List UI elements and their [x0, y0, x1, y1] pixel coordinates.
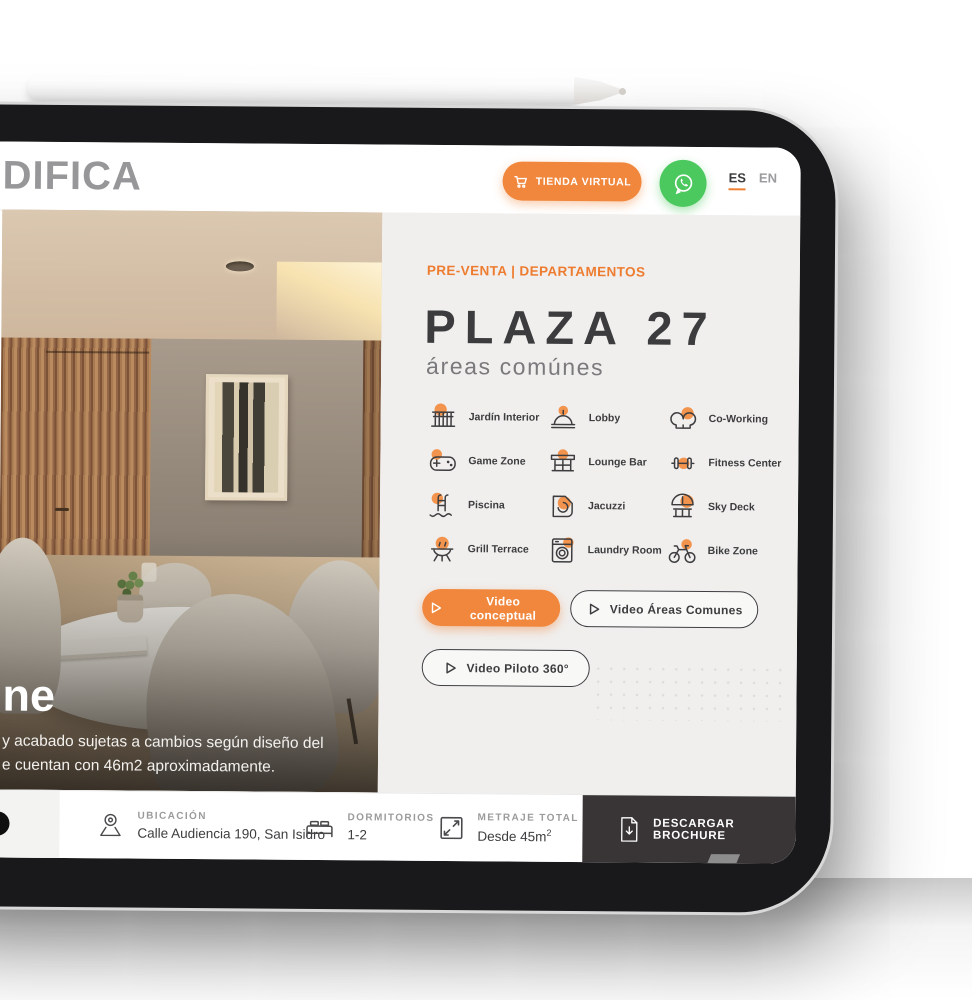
lounge-bar-icon — [545, 444, 580, 479]
apartment-photo: ne y acabado sujetas a cambios según dis… — [0, 209, 382, 792]
amenity-label: Lounge Bar — [588, 456, 646, 469]
info-dormitorios: DORMITORIOS 1-2 — [303, 793, 434, 862]
amenity-lobby: Lobby — [546, 400, 666, 437]
video-areas-label: Video Áreas Comunes — [610, 602, 743, 617]
tienda-virtual-button[interactable]: TIENDA VIRTUAL — [502, 161, 641, 201]
tienda-virtual-label: TIENDA VIRTUAL — [536, 175, 632, 188]
amenity-label: Piscina — [468, 499, 505, 512]
play-icon — [586, 601, 602, 617]
photo-door-handle — [55, 508, 69, 511]
info-metraje: METRAJE TOTAL Desde 45m2 — [437, 794, 579, 863]
photo-artwork-canvas — [214, 382, 279, 492]
video-areas-comunes-button[interactable]: Video Áreas Comunes — [570, 590, 758, 628]
video-piloto-360-button[interactable]: Video Piloto 360° — [422, 649, 590, 687]
amenity-label: Laundry Room — [588, 544, 662, 557]
coworking-heads-icon — [666, 401, 701, 436]
jacuzzi-icon — [545, 488, 580, 523]
whatsapp-icon — [668, 168, 698, 198]
grill-icon — [425, 531, 460, 566]
scene: DIFICA TIENDA VIRTUAL — [0, 0, 972, 1000]
metraje-label: METRAJE TOTAL — [478, 812, 579, 824]
amenity-piscina: Piscina — [425, 487, 545, 524]
main-area: ne y acabado sujetas a cambios según dis… — [0, 209, 800, 795]
video-conceptual-label: Video conceptual — [452, 594, 554, 623]
amenity-lounge-bar: Lounge Bar — [545, 444, 665, 481]
washing-machine-icon — [545, 532, 580, 567]
photo-caption-line: y acabado sujetas a cambios según diseño… — [2, 729, 324, 756]
cart-icon — [513, 173, 529, 189]
pool-ladder-icon — [425, 487, 460, 522]
lang-en[interactable]: EN — [759, 170, 777, 190]
photo-cove-light — [276, 262, 382, 347]
photo-artwork — [205, 374, 288, 501]
garden-icon — [426, 399, 461, 434]
umbrella-deck-icon — [665, 489, 700, 524]
download-document-icon — [618, 814, 640, 844]
amenity-label: Grill Terrace — [468, 543, 529, 556]
amenity-label: Bike Zone — [708, 545, 758, 558]
amenity-laundry-room: Laundry Room — [545, 532, 665, 569]
amenity-label: Lobby — [589, 412, 621, 425]
dumbbell-icon — [665, 445, 700, 480]
tablet-device: DIFICA TIENDA VIRTUAL — [0, 99, 839, 916]
amenity-label: Jardín Interior — [469, 411, 540, 424]
ubicacion-label: UBICACIÓN — [138, 811, 326, 823]
project-subtitle: áreas comúnes — [426, 353, 604, 381]
location-pin-icon — [95, 808, 125, 842]
apple-pencil-tip — [574, 77, 624, 105]
site-logo[interactable]: DIFICA — [2, 153, 142, 199]
amenity-label: Jacuzzi — [588, 500, 625, 513]
ubicacion-value: Calle Audiencia 190, San Isidro — [137, 826, 325, 842]
tablet-screen: DIFICA TIENDA VIRTUAL — [0, 141, 801, 863]
project-title: PLAZA 27 — [424, 299, 717, 356]
area-expand-icon — [437, 814, 465, 842]
video-piloto-label: Video Piloto 360° — [467, 661, 569, 676]
brochure-label: DESCARGAR BROCHURE — [653, 818, 796, 843]
amenity-label: Sky Deck — [708, 501, 755, 514]
reception-bell-icon — [546, 400, 581, 435]
play-icon — [428, 599, 444, 615]
amenities-grid: Jardín Interior Lobby — [425, 399, 798, 570]
gamepad-icon — [425, 443, 460, 478]
dots-decoration — [591, 662, 783, 722]
webpage: DIFICA TIENDA VIRTUAL — [0, 141, 801, 863]
amenity-bike-zone: Bike Zone — [665, 533, 797, 570]
amenity-game-zone: Game Zone — [425, 443, 545, 480]
info-ubicacion: UBICACIÓN Calle Audiencia 190, San Isidr… — [95, 791, 325, 861]
apple-pencil-body — [28, 73, 576, 105]
descargar-brochure-button[interactable]: DESCARGAR BROCHURE — [582, 795, 796, 864]
language-switcher: ES EN — [729, 170, 778, 190]
photo-downlight — [226, 261, 254, 271]
photo-caption-title: ne — [2, 672, 324, 720]
photo-caption-line: e cuentan con 46m2 aproximadamente. — [2, 753, 324, 780]
property-info-bar: UBICACIÓN Calle Audiencia 190, San Isidr… — [0, 789, 796, 863]
play-icon — [443, 659, 459, 675]
metraje-sup: 2 — [546, 828, 551, 838]
info-panel: PRE-VENTA | DEPARTAMENTOS PLAZA 27 áreas… — [378, 212, 801, 795]
amenity-jacuzzi: Jacuzzi — [545, 488, 665, 525]
amenity-fitness-center: Fitness Center — [665, 445, 797, 482]
bicycle-icon — [665, 533, 700, 568]
amenity-coworking: Co-Working — [666, 401, 798, 438]
amenity-label: Fitness Center — [708, 457, 781, 470]
whatsapp-button[interactable] — [659, 160, 706, 207]
dormitorios-label: DORMITORIOS — [348, 812, 435, 824]
amenity-label: Game Zone — [468, 455, 525, 468]
amenity-jardin-interior: Jardín Interior — [426, 399, 546, 436]
metraje-value: Desde 45m2 — [477, 827, 578, 844]
preventa-label: PRE-VENTA | DEPARTAMENTOS — [427, 263, 646, 280]
home-indicator-dash — [707, 854, 740, 863]
video-conceptual-button[interactable]: Video conceptual — [422, 589, 560, 627]
lang-es[interactable]: ES — [729, 170, 747, 190]
amenity-sky-deck: Sky Deck — [665, 489, 797, 526]
amenity-grill-terrace: Grill Terrace — [425, 531, 545, 568]
apple-pencil-nib — [619, 88, 626, 95]
amenity-label: Co-Working — [709, 413, 768, 426]
site-header: DIFICA TIENDA VIRTUAL — [0, 141, 801, 216]
photo-caption: ne y acabado sujetas a cambios según dis… — [2, 672, 324, 780]
dormitorios-value: 1-2 — [347, 827, 434, 843]
bed-icon — [303, 814, 335, 840]
